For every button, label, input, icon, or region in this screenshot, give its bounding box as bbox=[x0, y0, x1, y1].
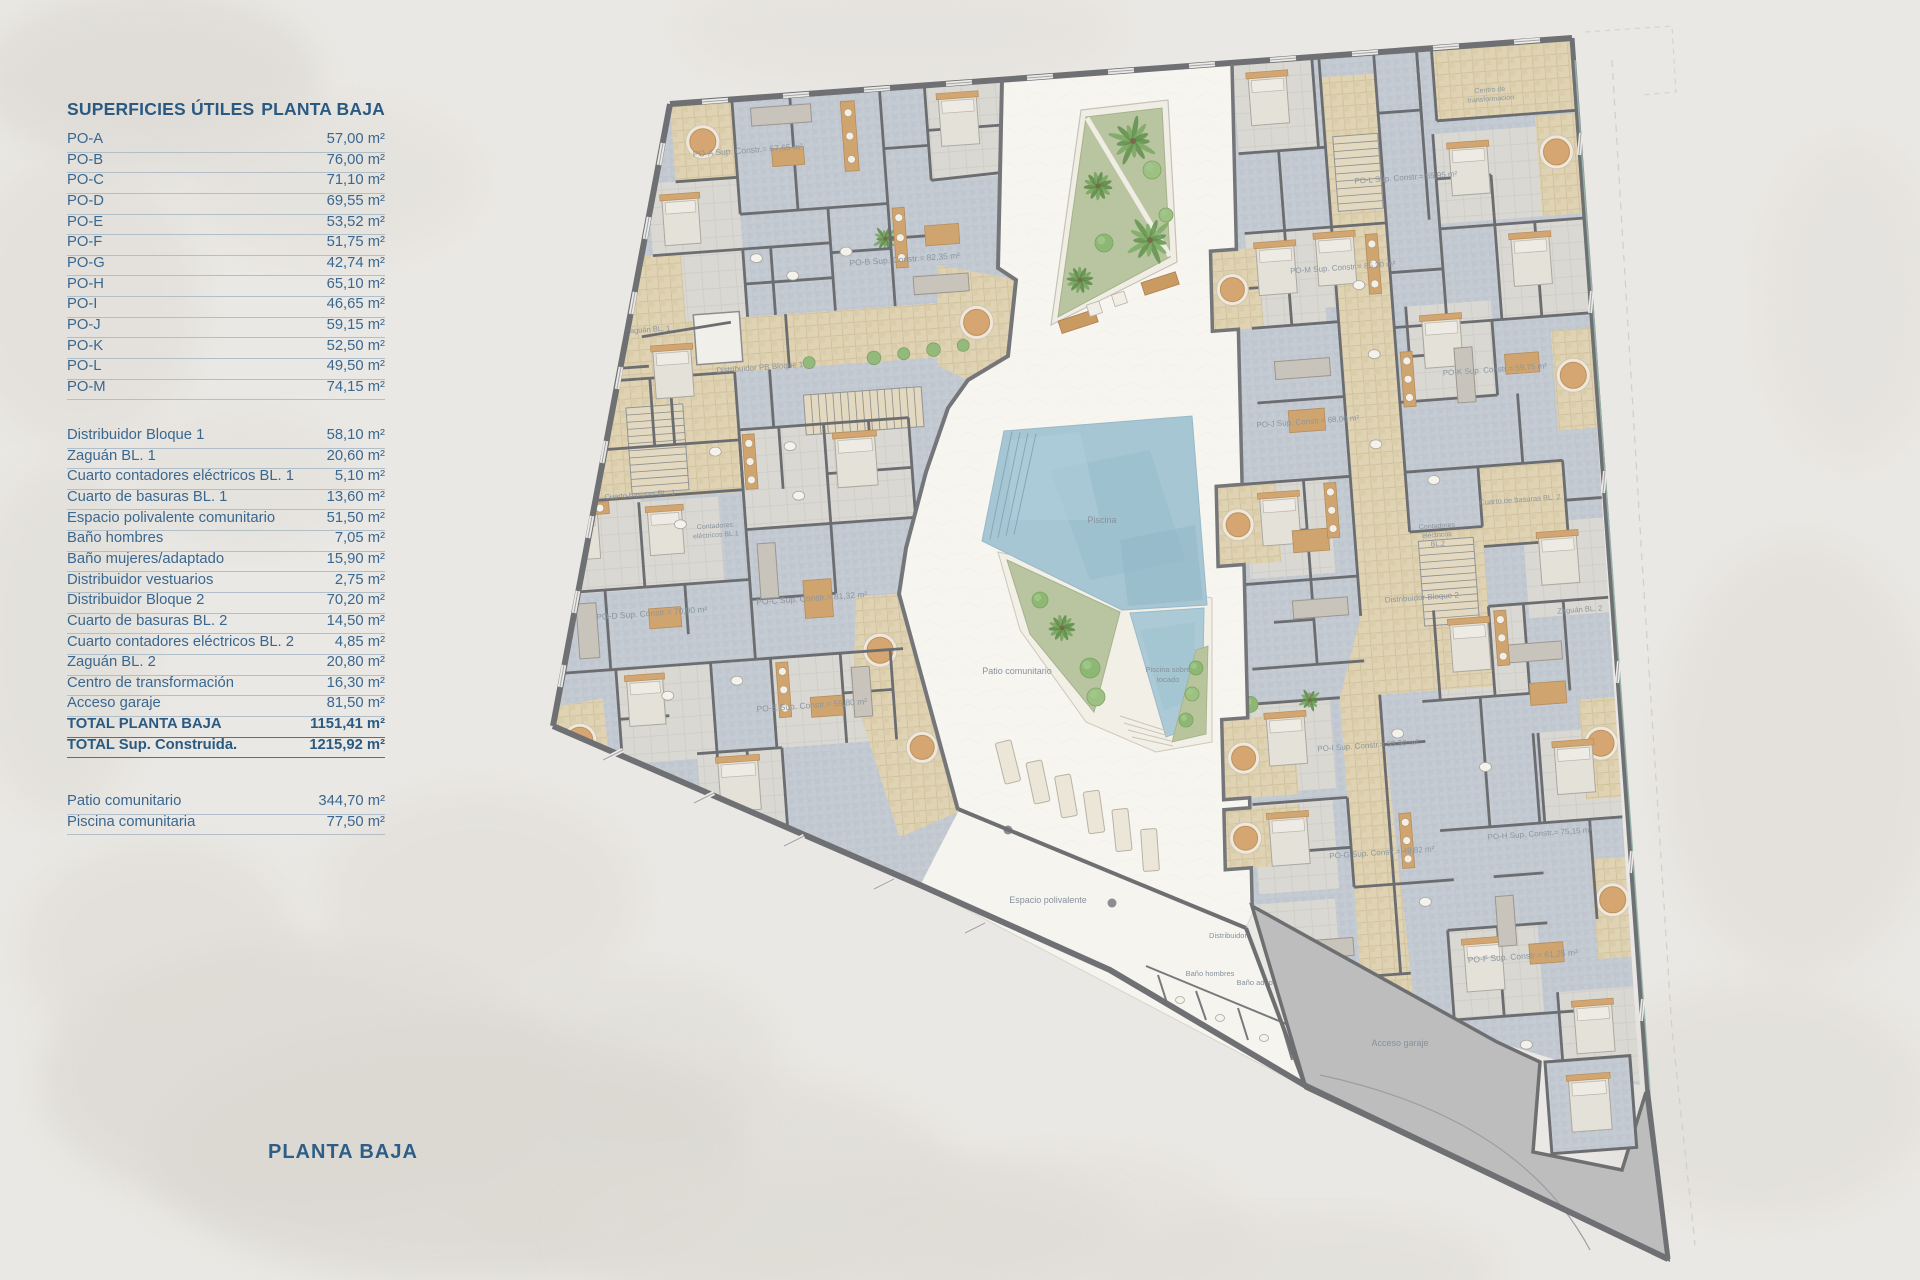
svg-text:Acceso garaje: Acceso garaje bbox=[1371, 1038, 1428, 1048]
svg-text:Espacio polivalente: Espacio polivalente bbox=[1009, 895, 1087, 905]
svg-text:BL.2: BL.2 bbox=[1430, 541, 1445, 549]
svg-text:Piscina: Piscina bbox=[1087, 515, 1116, 525]
svg-text:Piscina sobre: Piscina sobre bbox=[1145, 665, 1190, 674]
svg-text:Baño hombres: Baño hombres bbox=[1186, 969, 1235, 978]
svg-text:tocado: tocado bbox=[1157, 675, 1180, 684]
svg-text:Patio comunitario: Patio comunitario bbox=[982, 666, 1052, 676]
svg-text:Distribuidor: Distribuidor bbox=[1209, 931, 1247, 940]
